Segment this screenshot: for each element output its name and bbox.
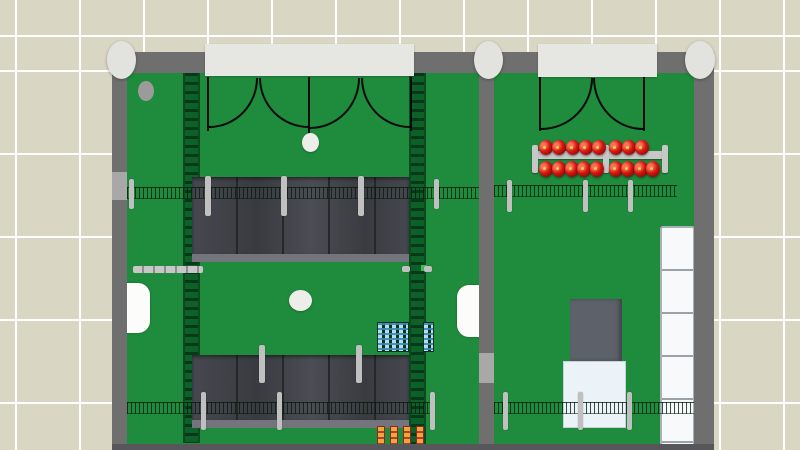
fence-post [628, 180, 633, 212]
small-post-mark [402, 266, 410, 272]
door-leaf [643, 77, 645, 131]
shelf-row-lower[interactable] [192, 355, 409, 428]
door-leaf [410, 77, 412, 131]
red-ball[interactable] [566, 140, 580, 155]
fence-post [201, 392, 206, 430]
red-ball[interactable] [622, 140, 636, 155]
door-sill-right[interactable] [538, 44, 657, 77]
center-floor-ellipse [289, 290, 312, 311]
red-ball[interactable] [635, 140, 649, 155]
column-post [685, 41, 715, 79]
entry-floor-ellipse [302, 133, 319, 152]
floor-mark-ellipse [138, 81, 154, 101]
shelf-post [281, 176, 287, 216]
wall-bumper-rail[interactable] [133, 266, 203, 273]
fence-post [627, 392, 632, 430]
fence-left-upper[interactable] [127, 187, 479, 199]
rail-cap [662, 145, 668, 173]
red-ball[interactable] [609, 140, 623, 155]
red-ball[interactable] [592, 140, 606, 155]
door-sill-left[interactable] [205, 44, 414, 76]
red-ball[interactable] [621, 161, 635, 177]
red-ball[interactable] [590, 161, 604, 177]
left-wall [112, 52, 127, 450]
white-pallet-box[interactable] [563, 361, 626, 428]
blue-item-rack[interactable] [377, 322, 409, 352]
fence-post [507, 180, 512, 212]
shelf-post [259, 345, 265, 383]
right-wall [694, 52, 714, 450]
bottom-edge-strip [112, 444, 714, 450]
wall-light-segment [112, 172, 127, 200]
blue-item-rack[interactable] [423, 322, 434, 352]
red-ball[interactable] [579, 140, 593, 155]
wall-counter-divider[interactable] [457, 285, 481, 337]
fence-post [434, 179, 439, 209]
red-ball[interactable] [646, 161, 660, 177]
column-post [474, 41, 503, 79]
red-ball[interactable] [552, 140, 566, 155]
floorplan-canvas[interactable] [0, 0, 800, 450]
fence-post [578, 392, 583, 430]
fence-post [129, 179, 134, 209]
fence-right-lower[interactable] [494, 402, 694, 414]
rail-cap [532, 145, 538, 173]
red-ball[interactable] [539, 161, 553, 177]
fence-post [583, 180, 588, 212]
shelf-post [205, 176, 211, 216]
wall-light-segment [479, 353, 494, 383]
fence-post [277, 392, 282, 430]
fence-post [430, 392, 435, 430]
wall-counter-left[interactable] [125, 283, 150, 333]
shelf-post [356, 345, 362, 383]
small-post-mark [424, 266, 432, 272]
red-ball[interactable] [539, 140, 553, 155]
fridge-display-column[interactable] [660, 226, 695, 448]
red-ball[interactable] [577, 161, 591, 177]
red-ball[interactable] [552, 161, 566, 177]
column-post [107, 41, 136, 79]
divider-wall [479, 52, 494, 450]
shelf-post [358, 176, 364, 216]
fence-post [503, 392, 508, 430]
gray-machine-box[interactable] [570, 299, 622, 361]
